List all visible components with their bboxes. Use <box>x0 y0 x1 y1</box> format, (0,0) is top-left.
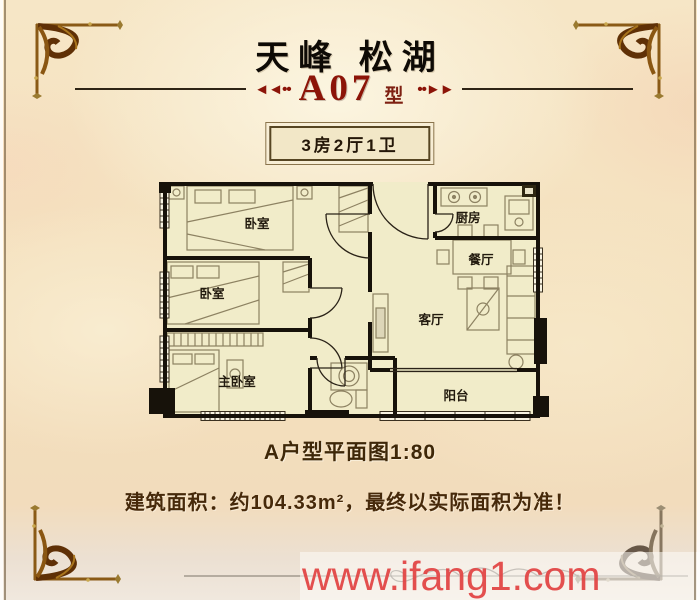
page-edge <box>0 0 3 600</box>
page-edge-line <box>694 0 696 600</box>
arrow-ornament-right-icon: ••►► <box>417 81 453 98</box>
plan-caption: A户型平面图1:80 <box>0 436 700 466</box>
arrow-ornament-left-icon: ◄◄•• <box>254 81 290 98</box>
unit-code-row: ◄◄•• A07 型 ••►► <box>75 72 633 106</box>
room-label-master-bedroom: 主卧室 <box>218 374 256 389</box>
room-label-kitchen: 厨房 <box>455 210 480 225</box>
rule-line-right <box>462 88 633 90</box>
flyer-page: 天峰 松湖 ◄◄•• A07 型 ••►► 3房2厅1卫 <box>0 0 700 600</box>
unit-type-suffix: 型 <box>384 81 403 108</box>
page-edge-line <box>4 0 6 600</box>
rule-line-left <box>75 88 246 90</box>
room-label-bedroom-1: 卧室 <box>244 216 270 231</box>
room-label-bedroom-2: 卧室 <box>199 286 225 301</box>
room-label-living-room: 客厅 <box>417 312 444 327</box>
floor-plan: 卧室 卧室 主卧室 厨房 餐厅 客厅 阳台 <box>145 170 560 425</box>
watermark: www.ifang1.com <box>302 552 700 600</box>
area-note: 建筑面积：约104.33m²，最终以实际面积为准！ <box>0 486 700 515</box>
unit-code: A07 <box>299 72 375 106</box>
room-label-balcony: 阳台 <box>443 388 468 403</box>
fridge-icon <box>522 185 536 197</box>
layout-badge-text: 3房2厅1卫 <box>269 126 430 161</box>
room-label-dining-room: 餐厅 <box>467 252 494 267</box>
layout-badge: 3房2厅1卫 <box>265 122 434 165</box>
